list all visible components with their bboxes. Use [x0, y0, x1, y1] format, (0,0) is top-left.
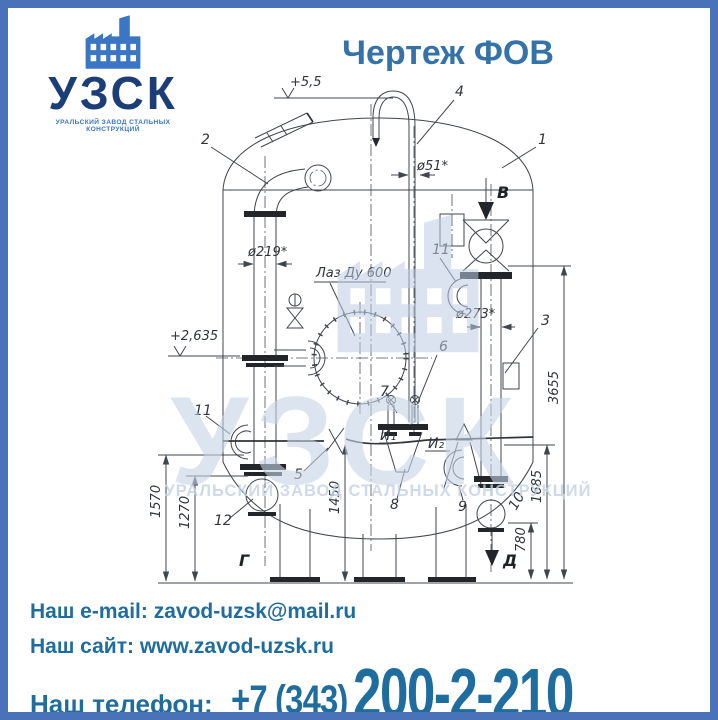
site-label: Наш сайт: [30, 635, 134, 658]
contact-phone-line: Наш телефон: +7 (343) 200-2-210 [30, 660, 654, 720]
small-valve [287, 294, 303, 328]
pos-3: 3 [541, 313, 550, 329]
dia-vent: ø51* [416, 159, 448, 174]
section-marker-d: Д [502, 551, 517, 570]
dim-1570: 1570 [149, 485, 164, 518]
phone-number: 200-2-210 [353, 660, 573, 720]
section-marker-g: Г [239, 551, 250, 570]
dim-780: 780 [514, 527, 529, 552]
pos-1: 1 [538, 132, 547, 148]
fov-technical-drawing: +5,5 +2,635 Лаз Ду 600 ø51* ø219* ø273* … [93, 70, 598, 600]
pos-2: 2 [201, 132, 210, 148]
pos-4: 4 [455, 84, 464, 100]
page-title: Чертеж ФОВ [298, 34, 598, 73]
section-marker-b: В [497, 183, 509, 202]
phone-label: Наш телефон: [30, 689, 213, 720]
elevation-top: +5,5 [290, 75, 322, 90]
contact-email-line: Наш e-mail: zavod-uzsk@mail.ru [30, 600, 356, 624]
top-nozzle [255, 113, 313, 147]
contact-site-line: Наш сайт: www.zavod-uzsk.ru [30, 635, 334, 659]
dim-3655: 3655 [547, 371, 562, 404]
pos-12: 12 [214, 513, 232, 529]
watermark-factory-icon [338, 215, 479, 353]
elevation-mid: +2,635 [170, 329, 218, 344]
email-value[interactable]: zavod-uzsk@mail.ru [154, 600, 357, 623]
phone-code: +7 (343) [231, 678, 348, 720]
page: УЗСК УРАЛЬСКИЙ ЗАВОД СТАЛЬНЫХ КОНСТРУКЦИ… [0, 0, 718, 720]
dia-left-pipe: ø219* [247, 245, 288, 260]
watermark-subtitle: УРАЛЬСКИЙ ЗАВОД СТАЛЬНЫХ КОНСТРУКЦИЙ [164, 481, 591, 500]
email-label: Наш e-mail: [30, 600, 148, 623]
factory-icon [81, 14, 145, 70]
site-value[interactable]: www.zavod-uzsk.ru [140, 635, 334, 658]
watermark: УЗСК УРАЛЬСКИЙ ЗАВОД СТАЛЬНЫХ КОНСТРУКЦИ… [164, 215, 591, 511]
